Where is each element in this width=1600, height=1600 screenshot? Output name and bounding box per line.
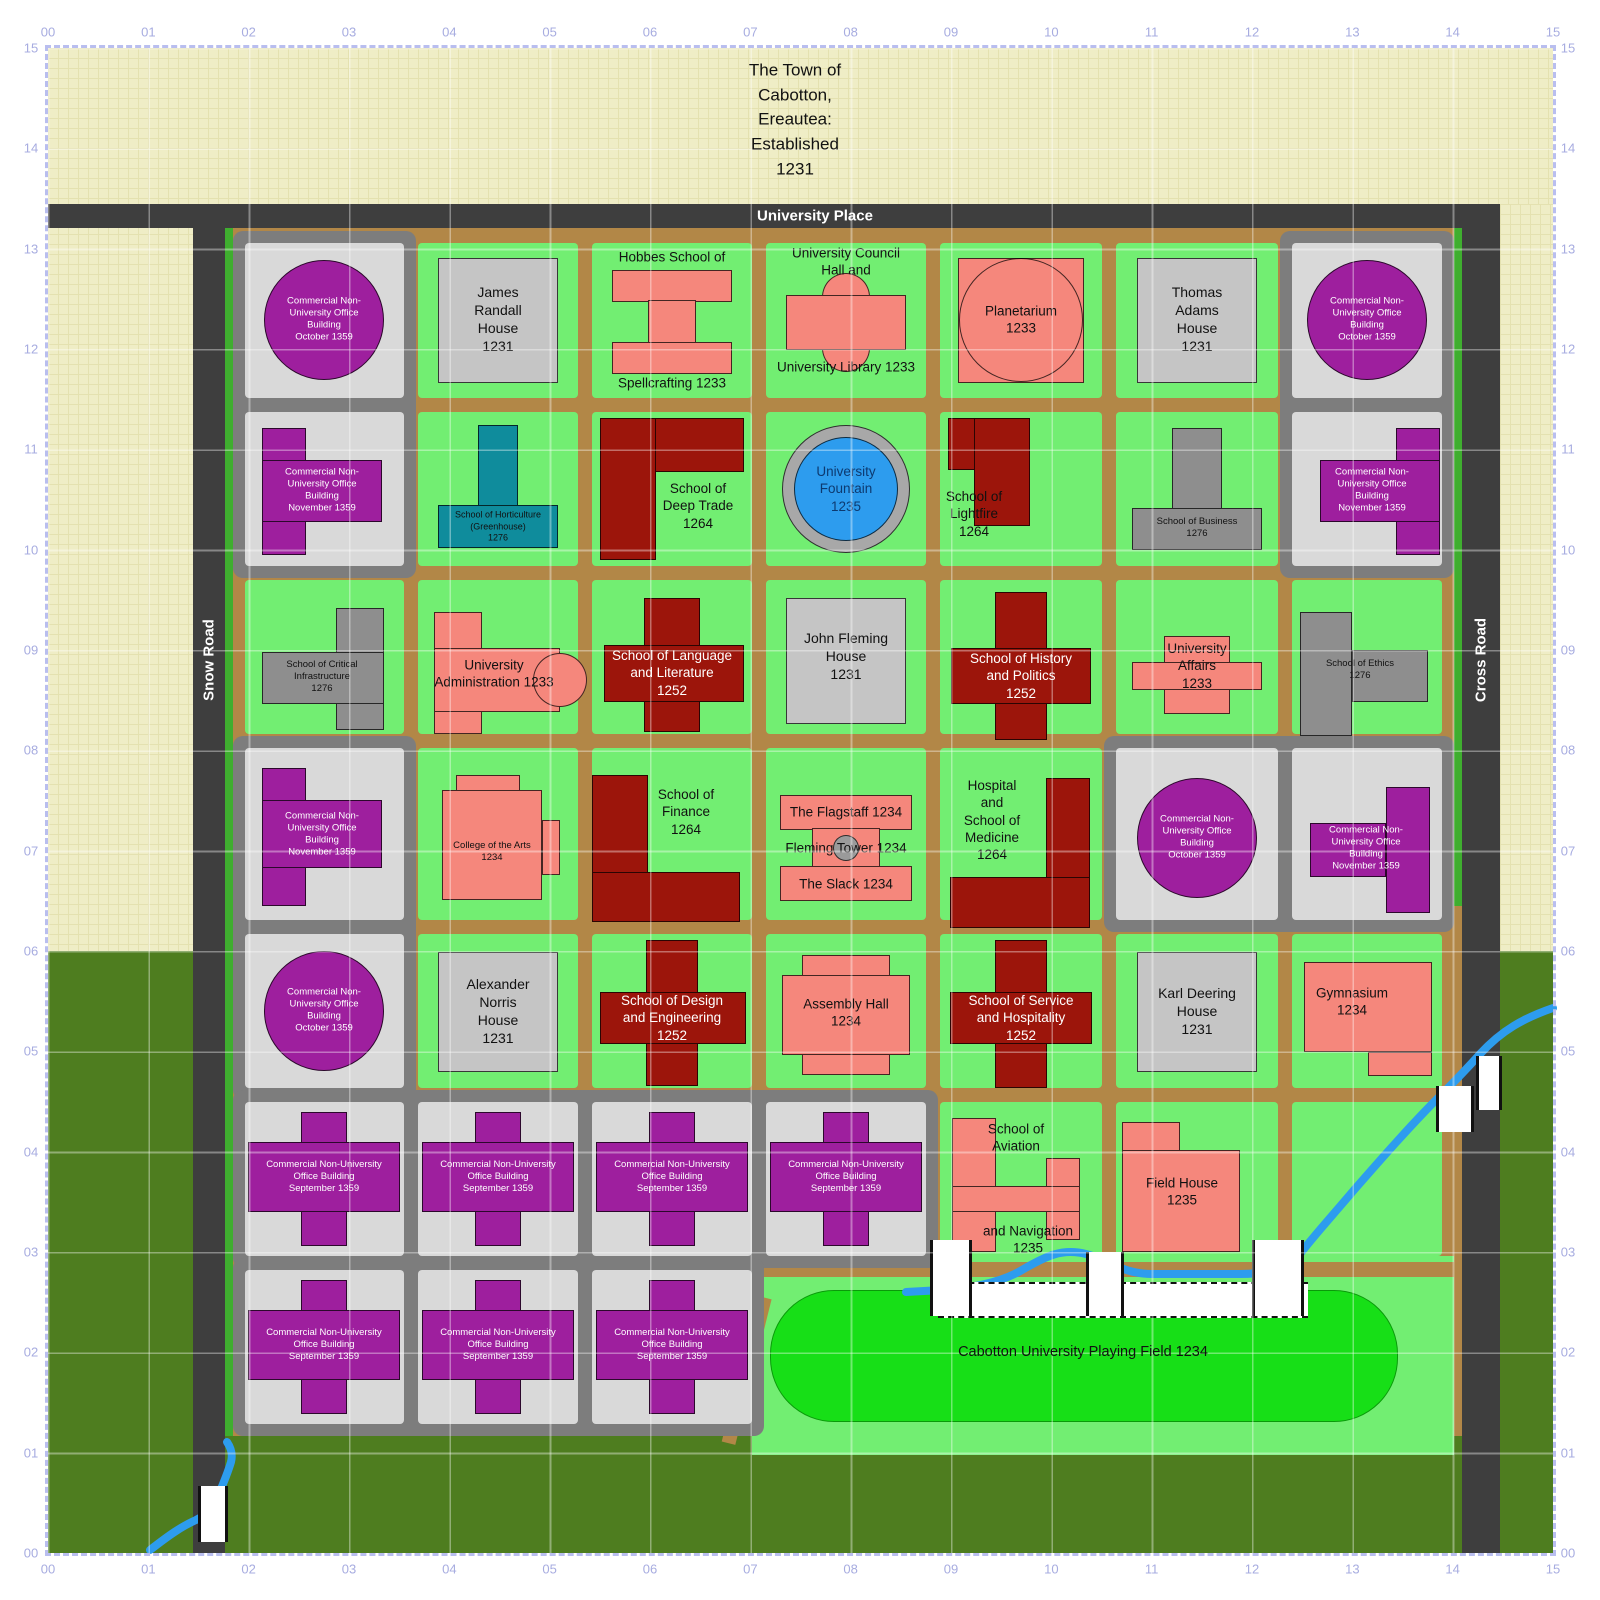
axis-label-left-05: 05	[24, 1044, 38, 1059]
axis-label-right-06: 06	[1561, 943, 1575, 958]
axis-label-right-11: 11	[1561, 442, 1575, 457]
axis-label-top-10: 10	[1044, 25, 1058, 40]
axis-label-top-15: 15	[1546, 25, 1560, 40]
axis-label-right-02: 02	[1561, 1345, 1575, 1360]
axis-label-right-10: 10	[1561, 542, 1575, 557]
axis-label-right-14: 14	[1561, 141, 1575, 156]
axis-label-right-07: 07	[1561, 843, 1575, 858]
axis-label-bottom-05: 05	[542, 1562, 556, 1577]
axis-label-bottom-00: 00	[41, 1562, 55, 1577]
axis-label-bottom-02: 02	[241, 1562, 255, 1577]
axis-label-left-10: 10	[24, 542, 38, 557]
axis-label-right-13: 13	[1561, 241, 1575, 256]
axis-label-top-12: 12	[1245, 25, 1259, 40]
axis-label-left-12: 12	[24, 341, 38, 356]
axis-label-right-01: 01	[1561, 1445, 1575, 1460]
axis-label-left-03: 03	[24, 1244, 38, 1259]
axis-label-bottom-10: 10	[1044, 1562, 1058, 1577]
axis-label-right-09: 09	[1561, 642, 1575, 657]
axis-label-left-01: 01	[24, 1445, 38, 1460]
axis-label-left-14: 14	[24, 141, 38, 156]
axis-label-left-09: 09	[24, 642, 38, 657]
axis-label-top-01: 01	[141, 25, 155, 40]
axis-label-right-05: 05	[1561, 1044, 1575, 1059]
axis-label-left-02: 02	[24, 1345, 38, 1360]
axis-label-bottom-07: 07	[743, 1562, 757, 1577]
axis-label-top-13: 13	[1345, 25, 1359, 40]
axis-label-right-04: 04	[1561, 1144, 1575, 1159]
axis-label-left-15: 15	[24, 41, 38, 56]
axis-label-left-04: 04	[24, 1144, 38, 1159]
axis-label-bottom-04: 04	[442, 1562, 456, 1577]
axis-label-top-03: 03	[342, 25, 356, 40]
axis-label-bottom-08: 08	[843, 1562, 857, 1577]
axis-label-left-08: 08	[24, 743, 38, 758]
axis-label-top-04: 04	[442, 25, 456, 40]
axis-label-left-06: 06	[24, 943, 38, 958]
axis-label-bottom-13: 13	[1345, 1562, 1359, 1577]
cabotton-town-map: Commercial Non- University Office Buildi…	[0, 0, 1600, 1600]
axis-label-top-05: 05	[542, 25, 556, 40]
axis-label-top-06: 06	[643, 25, 657, 40]
axis-label-top-07: 07	[743, 25, 757, 40]
axis-label-right-03: 03	[1561, 1244, 1575, 1259]
axis-label-left-00: 00	[24, 1545, 38, 1560]
axis-label-bottom-03: 03	[342, 1562, 356, 1577]
axis-label-bottom-14: 14	[1445, 1562, 1459, 1577]
axis-label-bottom-15: 15	[1546, 1562, 1560, 1577]
axis-label-top-00: 00	[41, 25, 55, 40]
axis-label-right-12: 12	[1561, 341, 1575, 356]
axis-label-left-13: 13	[24, 241, 38, 256]
axis-label-top-08: 08	[843, 25, 857, 40]
axis-label-top-14: 14	[1445, 25, 1459, 40]
axis-label-left-07: 07	[24, 843, 38, 858]
axis-label-left-11: 11	[24, 442, 38, 457]
axis-label-bottom-12: 12	[1245, 1562, 1259, 1577]
axis-label-top-09: 09	[944, 25, 958, 40]
map-dashed-border	[45, 45, 1556, 1556]
axis-label-right-08: 08	[1561, 743, 1575, 758]
axis-label-right-15: 15	[1561, 41, 1575, 56]
axis-label-bottom-09: 09	[944, 1562, 958, 1577]
axis-label-bottom-06: 06	[643, 1562, 657, 1577]
axis-label-top-02: 02	[241, 25, 255, 40]
axis-label-bottom-01: 01	[141, 1562, 155, 1577]
axis-label-top-11: 11	[1145, 25, 1159, 40]
axis-label-bottom-11: 11	[1145, 1562, 1159, 1577]
axis-label-right-00: 00	[1561, 1545, 1575, 1560]
